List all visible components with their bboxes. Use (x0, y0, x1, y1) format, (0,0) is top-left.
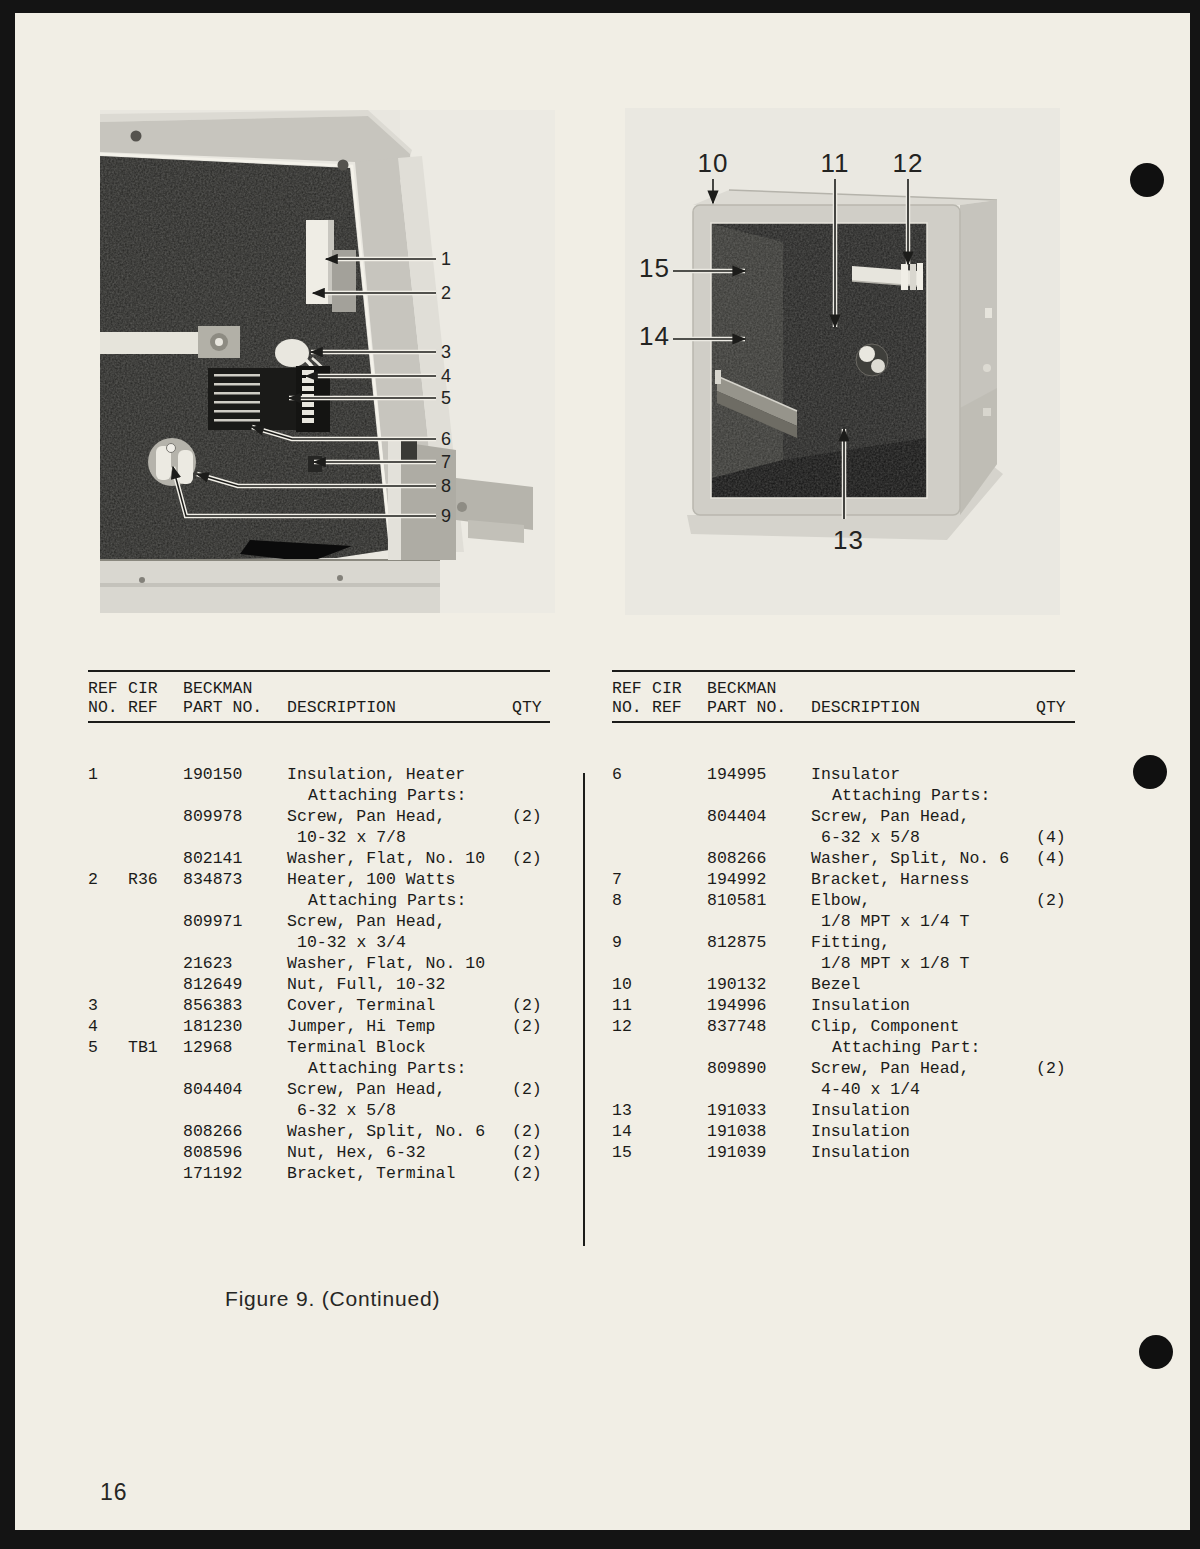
cell-part: 837748 (707, 1016, 766, 1037)
table-row: Attaching Part: (612, 1037, 1075, 1058)
cell-desc: Clip, Component (811, 1016, 960, 1037)
cell-ref: 1 (88, 764, 98, 785)
cell-desc: Attaching Part: (832, 1037, 981, 1058)
cell-part: 191038 (707, 1121, 766, 1142)
table-row: 21623Washer, Flat, No. 10 (88, 953, 550, 974)
col-header-ref-1: REF (612, 678, 642, 699)
cell-ref: 8 (612, 890, 622, 911)
col-header-cir-2: REF (652, 697, 682, 718)
cell-qty: (2) (512, 1079, 542, 1100)
cell-part: 808596 (183, 1142, 242, 1163)
cell-desc: 10-32 x 7/8 (297, 827, 406, 848)
callout-10: 10 (698, 148, 729, 178)
punch-hole (1133, 755, 1167, 789)
cell-desc: Attaching Parts: (308, 785, 466, 806)
col-header-part-1: BECKMAN (183, 678, 252, 699)
col-header-description: DESCRIPTION (287, 697, 396, 718)
table-row: 10-32 x 3/4 (88, 932, 550, 953)
table-row: 10-32 x 7/8 (88, 827, 550, 848)
cell-part: 809890 (707, 1058, 766, 1079)
table-row: Attaching Parts: (88, 785, 550, 806)
door-bottom-edge (100, 559, 440, 613)
table-header: REF CIR BECKMAN NO. REF PART NO. DESCRIP… (88, 678, 550, 716)
cell-qty: (2) (512, 1142, 542, 1163)
cell-ref: 4 (88, 1016, 98, 1037)
cell-desc: Attaching Parts: (308, 890, 466, 911)
figure-photo-case-interior: 10 11 12 13 14 15 (625, 108, 1060, 615)
col-header-qty: QTY (512, 697, 542, 718)
callout-15: 15 (639, 253, 670, 283)
table-body: 6194995InsulatorAttaching Parts:804404Sc… (612, 764, 1075, 1163)
table-body: 1190150Insulation, HeaterAttaching Parts… (88, 764, 550, 1184)
punch-hole (1139, 1335, 1173, 1369)
table-row: 2R36834873Heater, 100 Watts (88, 869, 550, 890)
callout-14: 14 (639, 321, 670, 351)
cell-desc: Insulator (811, 764, 900, 785)
callout-4: 4 (441, 366, 452, 386)
cell-desc: Fitting, (811, 932, 890, 953)
cell-desc: Insulation (811, 1100, 910, 1121)
cell-part: 190150 (183, 764, 242, 785)
callout-11: 11 (821, 148, 850, 178)
table-row: 808266Washer, Split, No. 6(2) (88, 1121, 550, 1142)
table-row: Attaching Parts: (612, 785, 1075, 806)
cell-part: 812875 (707, 932, 766, 953)
cell-ref: 13 (612, 1100, 632, 1121)
cell-desc: Cover, Terminal (287, 995, 436, 1016)
cell-part: 21623 (183, 953, 233, 974)
cell-desc: Terminal Block (287, 1037, 426, 1058)
cell-qty: (2) (1036, 890, 1066, 911)
table-row: 4-40 x 1/4 (612, 1079, 1075, 1100)
cell-qty: (4) (1036, 848, 1066, 869)
cell-desc: Screw, Pan Head, (811, 806, 969, 827)
cell-desc: Jumper, Hi Temp (287, 1016, 436, 1037)
table-row: 1/8 MPT x 1/4 T (612, 911, 1075, 932)
cell-part: 856383 (183, 995, 242, 1016)
callout-7: 7 (441, 452, 452, 472)
column-divider-line (583, 773, 585, 1246)
cell-ref: 5 (88, 1037, 98, 1058)
cell-part: 191039 (707, 1142, 766, 1163)
col-header-cir-1: CIR (652, 678, 682, 699)
cell-qty: (2) (512, 995, 542, 1016)
table-row: 9812875Fitting, (612, 932, 1075, 953)
cell-part: 171192 (183, 1163, 242, 1184)
table-row: 6194995Insulator (612, 764, 1075, 785)
cell-desc: Insulation (811, 1142, 910, 1163)
cell-part: 808266 (707, 848, 766, 869)
cell-desc: Nut, Full, 10-32 (287, 974, 445, 995)
cell-part: 809978 (183, 806, 242, 827)
cell-desc: 1/8 MPT x 1/4 T (821, 911, 970, 932)
table-row: 11194996Insulation (612, 995, 1075, 1016)
parts-table-right: REF CIR BECKMAN NO. REF PART NO. DESCRIP… (612, 670, 1075, 1210)
cell-ref: 12 (612, 1016, 632, 1037)
cell-qty: (2) (512, 1163, 542, 1184)
figure-caption: Figure 9. (Continued) (225, 1287, 440, 1311)
cell-desc: Attaching Parts: (308, 1058, 466, 1079)
cell-ref: 15 (612, 1142, 632, 1163)
table-rule-top (88, 670, 550, 672)
cell-part: 810581 (707, 890, 766, 911)
table-row: 171192Bracket, Terminal(2) (88, 1163, 550, 1184)
table-row: 5TB112968Terminal Block (88, 1037, 550, 1058)
cell-desc: Bezel (811, 974, 861, 995)
callout-12: 12 (893, 148, 924, 178)
cell-desc: Elbow, (811, 890, 870, 911)
table-row: 14191038Insulation (612, 1121, 1075, 1142)
callout-3: 3 (441, 342, 452, 362)
cell-desc: Washer, Flat, No. 10 (287, 848, 485, 869)
cell-part: 194995 (707, 764, 766, 785)
cell-desc: Bracket, Terminal (287, 1163, 455, 1184)
cell-desc: 6-32 x 5/8 (821, 827, 920, 848)
callout-6: 6 (441, 429, 452, 449)
col-header-part-2: PART NO. (707, 697, 786, 718)
cell-cir: R36 (128, 869, 158, 890)
cell-desc: Screw, Pan Head, (287, 806, 445, 827)
cell-desc: 4-40 x 1/4 (821, 1079, 920, 1100)
table-row: 6-32 x 5/8(4) (612, 827, 1075, 848)
table-row: 3856383Cover, Terminal(2) (88, 995, 550, 1016)
table-row: 1190150Insulation, Heater (88, 764, 550, 785)
callout-8: 8 (441, 476, 452, 496)
parts-table-left: REF CIR BECKMAN NO. REF PART NO. DESCRIP… (88, 670, 550, 1210)
table-row: 808596Nut, Hex, 6-32(2) (88, 1142, 550, 1163)
cell-desc: 10-32 x 3/4 (297, 932, 406, 953)
cell-desc: 1/8 MPT x 1/8 T (821, 953, 970, 974)
callout-13: 13 (833, 525, 864, 555)
cell-desc: Insulation, Heater (287, 764, 465, 785)
callout-2: 2 (441, 283, 452, 303)
table-row: 4181230Jumper, Hi Temp(2) (88, 1016, 550, 1037)
cell-desc: Washer, Split, No. 6 (811, 848, 1009, 869)
cell-part: 812649 (183, 974, 242, 995)
col-header-ref-2: NO. (612, 697, 642, 718)
cell-part: 804404 (183, 1079, 242, 1100)
col-header-ref-2: NO. (88, 697, 118, 718)
table-row: 6-32 x 5/8 (88, 1100, 550, 1121)
callout-5: 5 (441, 388, 452, 408)
table-row: 804404Screw, Pan Head, (612, 806, 1075, 827)
cell-ref: 11 (612, 995, 632, 1016)
cell-part: 804404 (707, 806, 766, 827)
cell-cir: TB1 (128, 1037, 158, 1058)
table-row: Attaching Parts: (88, 1058, 550, 1079)
grommet (148, 438, 196, 486)
cell-desc: 6-32 x 5/8 (297, 1100, 396, 1121)
callout-9: 9 (441, 506, 452, 526)
cell-part: 194992 (707, 869, 766, 890)
cell-part: 809971 (183, 911, 242, 932)
col-header-ref-1: REF (88, 678, 118, 699)
cell-qty: (2) (512, 1121, 542, 1142)
cell-ref: 6 (612, 764, 622, 785)
manual-page: 1 2 3 4 5 6 7 8 9 (15, 13, 1190, 1530)
col-header-part-1: BECKMAN (707, 678, 776, 699)
callout-1: 1 (441, 249, 452, 269)
cell-desc: Attaching Parts: (832, 785, 990, 806)
table-row: 12837748Clip, Component (612, 1016, 1075, 1037)
cell-desc: Insulation (811, 995, 910, 1016)
table-row: 809890Screw, Pan Head,(2) (612, 1058, 1075, 1079)
cell-part: 834873 (183, 869, 242, 890)
cell-desc: Screw, Pan Head, (287, 1079, 445, 1100)
cell-ref: 7 (612, 869, 622, 890)
cell-qty: (2) (1036, 1058, 1066, 1079)
cell-ref: 14 (612, 1121, 632, 1142)
table-row: Attaching Parts: (88, 890, 550, 911)
cell-qty: (2) (512, 1016, 542, 1037)
cell-desc: Screw, Pan Head, (287, 911, 445, 932)
table-row: 15191039Insulation (612, 1142, 1075, 1163)
cell-part: 808266 (183, 1121, 242, 1142)
cell-desc: Bracket, Harness (811, 869, 969, 890)
cell-desc: Washer, Flat, No. 10 (287, 953, 485, 974)
table-row: 7194992Bracket, Harness (612, 869, 1075, 890)
table-rule-bottom (612, 721, 1075, 723)
table-row: 1/8 MPT x 1/8 T (612, 953, 1075, 974)
col-header-part-2: PART NO. (183, 697, 262, 718)
cell-desc: Washer, Split, No. 6 (287, 1121, 485, 1142)
table-row: 10190132Bezel (612, 974, 1075, 995)
cell-part: 194996 (707, 995, 766, 1016)
col-header-qty: QTY (1036, 697, 1066, 718)
table-rule-top (612, 670, 1075, 672)
cell-qty: (2) (512, 806, 542, 827)
table-row: 809971Screw, Pan Head, (88, 911, 550, 932)
case-interior (711, 223, 927, 498)
cell-ref: 2 (88, 869, 98, 890)
frame-screw (338, 160, 349, 171)
figure-photo-door-interior: 1 2 3 4 5 6 7 8 9 (100, 110, 555, 613)
cell-part: 802141 (183, 848, 242, 869)
table-row: 809978Screw, Pan Head,(2) (88, 806, 550, 827)
cell-desc: Insulation (811, 1121, 910, 1142)
frame-screw (131, 131, 142, 142)
cell-desc: Nut, Hex, 6-32 (287, 1142, 426, 1163)
col-header-description: DESCRIPTION (811, 697, 920, 718)
cell-part: 191033 (707, 1100, 766, 1121)
table-row: 804404Screw, Pan Head,(2) (88, 1079, 550, 1100)
table-row: 808266Washer, Split, No. 6(4) (612, 848, 1075, 869)
cell-part: 12968 (183, 1037, 233, 1058)
cell-part: 190132 (707, 974, 766, 995)
table-row: 812649Nut, Full, 10-32 (88, 974, 550, 995)
punch-hole (1130, 163, 1164, 197)
cell-qty: (2) (512, 848, 542, 869)
cell-desc: Screw, Pan Head, (811, 1058, 969, 1079)
page-number: 16 (100, 1479, 128, 1506)
cell-ref: 3 (88, 995, 98, 1016)
table-header: REF CIR BECKMAN NO. REF PART NO. DESCRIP… (612, 678, 1075, 716)
table-row: 802141Washer, Flat, No. 10(2) (88, 848, 550, 869)
cell-desc: Heater, 100 Watts (287, 869, 455, 890)
cell-part: 181230 (183, 1016, 242, 1037)
table-row: 13191033Insulation (612, 1100, 1075, 1121)
table-row: 8810581Elbow,(2) (612, 890, 1075, 911)
col-header-cir-1: CIR (128, 678, 158, 699)
cell-ref: 10 (612, 974, 632, 995)
table-rule-bottom (88, 721, 550, 723)
col-header-cir-2: REF (128, 697, 158, 718)
cell-ref: 9 (612, 932, 622, 953)
cell-qty: (4) (1036, 827, 1066, 848)
